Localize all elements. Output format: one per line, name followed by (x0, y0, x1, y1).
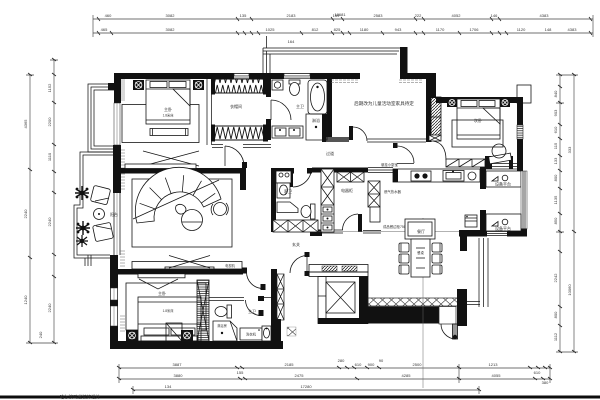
svg-text:2240: 2240 (47, 303, 52, 313)
svg-text:过道: 过道 (326, 150, 334, 156)
svg-text:840: 840 (553, 90, 558, 97)
svg-text:1.8米床: 1.8米床 (163, 308, 175, 313)
svg-text:133: 133 (553, 157, 558, 164)
svg-text:10060: 10060 (567, 284, 572, 296)
svg-text:800: 800 (553, 174, 558, 181)
svg-text:2240: 2240 (47, 217, 52, 227)
svg-text:465: 465 (101, 27, 108, 32)
svg-text:1025: 1025 (266, 27, 276, 32)
svg-text:460: 460 (105, 13, 112, 18)
svg-text:电视机: 电视机 (225, 263, 235, 268)
svg-text:825: 825 (334, 27, 341, 32)
svg-text:哈尔滨鸣雀装饰设计: 哈尔滨鸣雀装饰设计 (60, 394, 101, 400)
svg-text:850: 850 (553, 217, 558, 224)
svg-text:1110: 1110 (47, 152, 52, 161)
svg-text:洗衣机: 洗衣机 (246, 332, 257, 337)
svg-text:610: 610 (355, 362, 362, 367)
svg-text:1180: 1180 (360, 27, 369, 32)
svg-text:1120: 1120 (517, 27, 526, 32)
svg-text:2475: 2475 (295, 373, 305, 378)
svg-text:1170: 1170 (436, 27, 445, 32)
svg-text:淋浴: 淋浴 (312, 117, 320, 123)
svg-text:812: 812 (312, 27, 319, 32)
svg-text:玄关: 玄关 (292, 241, 300, 247)
svg-text:客卫: 客卫 (284, 188, 292, 194)
svg-text:159: 159 (333, 13, 340, 18)
svg-text:4052: 4052 (452, 13, 462, 18)
svg-text:2583: 2583 (374, 13, 384, 18)
svg-text:4365: 4365 (23, 119, 28, 129)
svg-text:主卧: 主卧 (164, 106, 172, 112)
svg-text:155: 155 (237, 370, 244, 375)
svg-text:阳台: 阳台 (110, 211, 118, 217)
svg-text:903: 903 (553, 109, 558, 116)
svg-text:115: 115 (553, 142, 558, 149)
svg-text:222: 222 (415, 13, 422, 18)
svg-text:1.8米床: 1.8米床 (163, 113, 175, 118)
svg-text:衣帽间: 衣帽间 (230, 103, 242, 109)
svg-text:333: 333 (567, 146, 572, 153)
svg-text:610: 610 (534, 370, 541, 375)
svg-text:148: 148 (545, 27, 552, 32)
svg-text:135: 135 (240, 13, 247, 18)
svg-text:淋浴房: 淋浴房 (217, 323, 227, 328)
svg-text:4055: 4055 (492, 373, 502, 378)
svg-text:设备平台: 设备平台 (495, 225, 511, 231)
svg-text:146: 146 (491, 13, 498, 18)
svg-text:17280: 17280 (300, 384, 312, 389)
svg-text:电器柜: 电器柜 (341, 187, 353, 193)
svg-text:1240: 1240 (23, 295, 28, 305)
svg-text:4285: 4285 (402, 373, 412, 378)
svg-text:3082: 3082 (166, 27, 176, 32)
svg-text:1152: 1152 (47, 83, 52, 92)
svg-text:3880: 3880 (174, 373, 184, 378)
svg-text:设备平台: 设备平台 (495, 181, 511, 187)
svg-text:800: 800 (553, 311, 558, 318)
svg-text:240: 240 (38, 331, 43, 338)
svg-text:悬挂小厨宝: 悬挂小厨宝 (381, 162, 399, 167)
svg-text:1112: 1112 (553, 332, 558, 341)
svg-text:2500: 2500 (413, 362, 423, 367)
svg-text:2200: 2200 (47, 117, 52, 127)
svg-text:主卫: 主卫 (296, 103, 304, 109)
svg-text:3887: 3887 (173, 362, 183, 367)
svg-text:3082: 3082 (166, 13, 176, 18)
svg-text:餐厅: 餐厅 (417, 228, 425, 234)
svg-text:164: 164 (288, 39, 295, 44)
svg-text:主卧: 主卧 (158, 290, 166, 296)
svg-text:2240: 2240 (23, 209, 28, 219)
svg-text:280: 280 (338, 358, 345, 363)
svg-text:1213: 1213 (489, 362, 499, 367)
svg-text:90: 90 (379, 358, 384, 363)
svg-text:餐桌: 餐桌 (417, 250, 424, 255)
svg-text:1706: 1706 (470, 27, 480, 32)
svg-text:380: 380 (542, 380, 549, 385)
svg-text:610: 610 (553, 126, 558, 133)
svg-text:2185: 2185 (285, 362, 295, 367)
svg-text:4383: 4383 (568, 27, 578, 32)
svg-text:次卧: 次卧 (474, 117, 482, 123)
svg-text:134: 134 (165, 384, 172, 389)
svg-text:900: 900 (368, 362, 375, 367)
svg-text:1135: 1135 (553, 195, 558, 204)
svg-text:943: 943 (395, 27, 402, 32)
svg-text:主卫: 主卫 (248, 308, 256, 314)
svg-text:4383: 4383 (540, 13, 550, 18)
svg-text:2183: 2183 (287, 13, 297, 18)
svg-text:燃气热水器: 燃气热水器 (384, 189, 402, 194)
svg-text:2242: 2242 (553, 273, 558, 283)
svg-text:后期改为儿童活动室家具待定: 后期改为儿童活动室家具待定 (354, 100, 414, 107)
